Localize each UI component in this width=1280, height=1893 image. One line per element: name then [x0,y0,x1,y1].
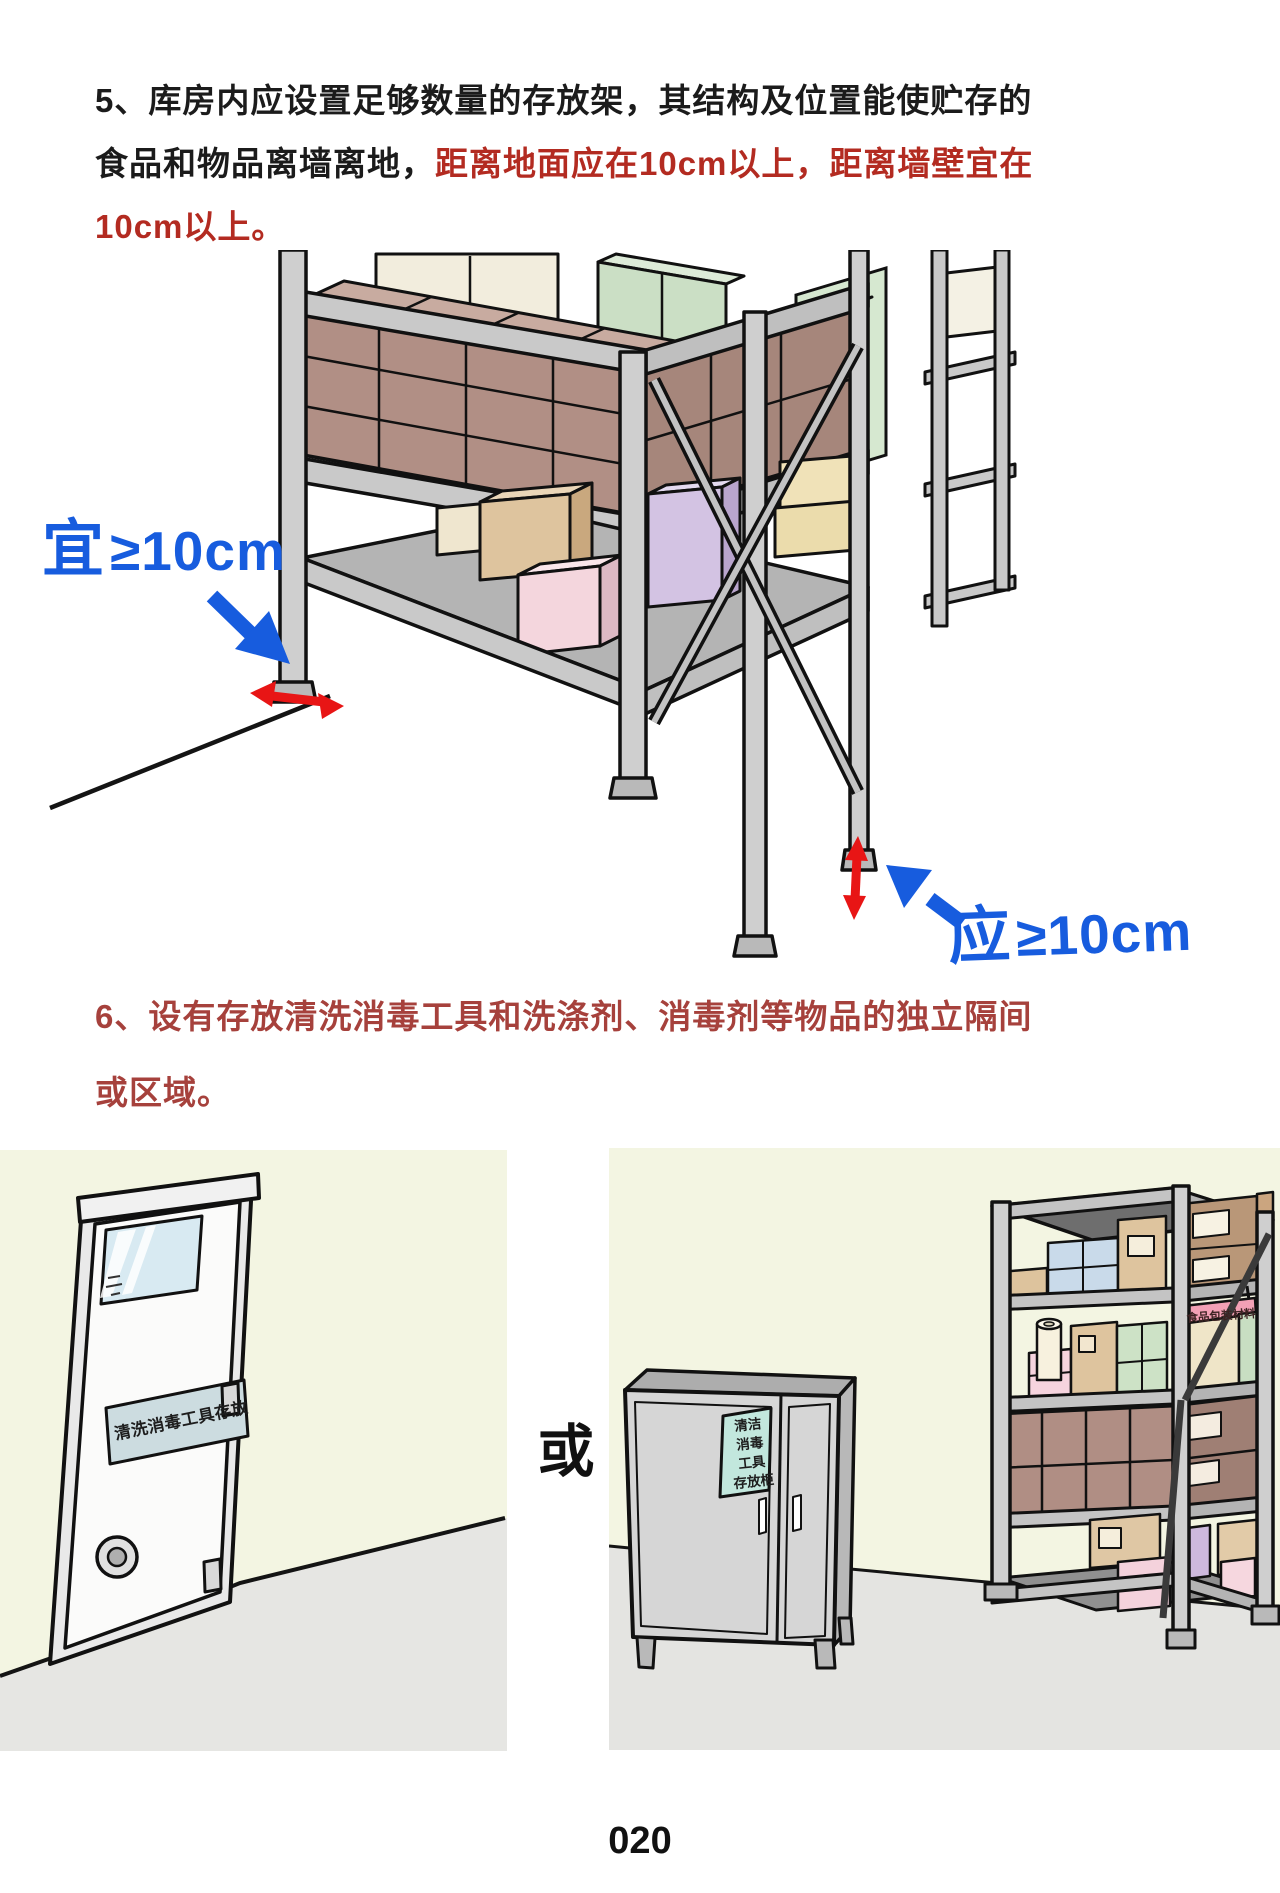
cleaning-cabinet [625,1370,855,1668]
wall-floor-line [50,696,330,808]
floor-clearance-value: ≥10cm [1015,899,1193,969]
cabinet-sign-label: 清洁 消毒 工具 存放柜 [723,1413,779,1494]
section6-line1: 6、设有存放清洗消毒工具和洗涤剂、消毒剂等物品的独立隔间 [95,990,1032,1038]
section6-line2-text: 或区域。 [95,1074,231,1111]
packing-rack [985,1186,1279,1648]
wall-clearance-cjk: 宜 [42,498,104,588]
section5-line3-text: 10cm以上。 [95,208,285,245]
wall-clearance-value: ≥10cm [110,519,286,583]
section6-line1-text: 6、设有存放清洗消毒工具和洗涤剂、消毒剂等物品的独立隔间 [95,998,1032,1035]
page-number: 020 [560,1820,720,1863]
floor-clearance-cjk: 应 [947,884,1012,976]
wall-clearance-label: 宜 ≥10cm [42,498,286,588]
section5-line2: 食品和物品离墙离地，距离地面应在10cm以上，距离墙壁宜在 [95,137,1033,185]
section5-line1: 5、库房内应设置足够数量的存放架，其结构及位置能使贮存的 [95,74,1032,122]
floor-clearance-label: 应 ≥10cm [947,878,1194,976]
background-rack [925,250,1015,626]
section5-line2-black: 食品和物品离墙离地， [95,145,435,182]
door-panel [0,1150,507,1751]
cabinet-rack-illustration [609,1148,1280,1750]
door-illustration [0,1150,507,1751]
section5-line3: 10cm以上。 [95,200,285,248]
manual-page: 5、库房内应设置足够数量的存放架，其结构及位置能使贮存的 食品和物品离墙离地，距… [0,0,1280,1893]
rack-figure [0,250,1280,980]
section6-line2: 或区域。 [95,1066,231,1114]
section5-line2-red: 距离地面应在10cm以上，距离墙壁宜在 [435,145,1033,182]
or-label: 或 [524,1406,608,1488]
cabinet-rack-panel [609,1148,1280,1750]
rack-illustration [0,250,1280,980]
section5-line1-text: 5、库房内应设置足够数量的存放架，其结构及位置能使贮存的 [95,82,1032,119]
